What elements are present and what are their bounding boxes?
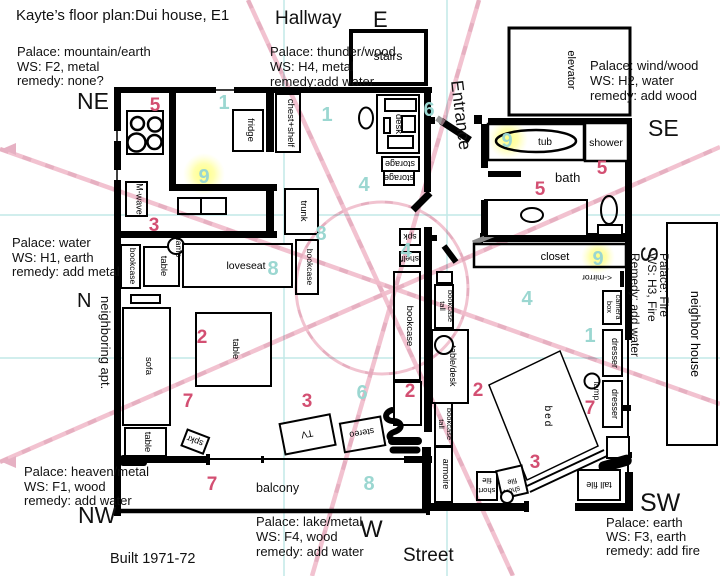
svg-text:remedy:add water: remedy:add water: [270, 74, 375, 89]
svg-text:WS: F1, wood: WS: F1, wood: [24, 479, 106, 494]
svg-text:Palace: water: Palace: water: [12, 235, 91, 250]
svg-text:elevator: elevator: [565, 50, 577, 89]
svg-text:balcony: balcony: [256, 481, 300, 495]
svg-text:short: short: [478, 486, 496, 495]
svg-text:chest+shelf: chest+shelf: [285, 99, 296, 148]
svg-text:7: 7: [585, 398, 596, 419]
svg-text:tall file: tall file: [586, 480, 612, 490]
svg-text:WS: H2, water: WS: H2, water: [590, 73, 674, 88]
svg-text:7: 7: [183, 391, 194, 412]
svg-text:WS: F2, metal: WS: F2, metal: [17, 59, 99, 74]
svg-text:<-mirror: <-mirror: [582, 273, 612, 283]
svg-text:5: 5: [597, 158, 608, 179]
svg-text:remedy: add wood: remedy: add wood: [590, 88, 697, 103]
svg-text:E: E: [373, 7, 388, 32]
svg-text:table: table: [142, 432, 153, 453]
svg-text:remedy: none?: remedy: none?: [17, 73, 104, 88]
svg-text:8: 8: [315, 223, 326, 245]
svg-text:1: 1: [584, 325, 595, 347]
svg-text:9: 9: [501, 130, 512, 152]
svg-text:WS: H4, metal: WS: H4, metal: [270, 59, 354, 74]
svg-text:4: 4: [521, 288, 533, 310]
svg-text:Remedy: add water: Remedy: add water: [628, 253, 642, 357]
svg-text:storage: storage: [385, 159, 415, 169]
svg-text:SW: SW: [640, 489, 681, 517]
svg-text:WS: F4, wood: WS: F4, wood: [256, 529, 338, 544]
svg-text:sofa: sofa: [143, 357, 154, 376]
svg-text:camera: camera: [614, 294, 623, 320]
svg-text:box: box: [605, 301, 614, 313]
svg-text:Palace: thunder/wood: Palace: thunder/wood: [270, 44, 396, 59]
svg-text:trunk: trunk: [298, 200, 309, 221]
svg-text:loveseat: loveseat: [226, 260, 265, 272]
svg-text:Built 1971-72: Built 1971-72: [110, 551, 195, 567]
svg-text:7: 7: [207, 474, 218, 495]
svg-text:storage: storage: [384, 173, 414, 183]
svg-text:remedy: add metal: remedy: add metal: [12, 264, 120, 279]
svg-text:neighboring apt.: neighboring apt.: [98, 296, 113, 389]
svg-text:1: 1: [321, 104, 332, 126]
svg-text:neighbor house: neighbor house: [688, 291, 702, 377]
svg-text:WS: H1, earth: WS: H1, earth: [12, 250, 94, 265]
svg-text:W: W: [360, 516, 383, 543]
svg-text:bath: bath: [555, 170, 580, 185]
svg-text:Palace: earth: Palace: earth: [606, 515, 683, 530]
svg-text:N: N: [77, 290, 91, 312]
svg-text:NE: NE: [77, 88, 109, 114]
svg-text:6: 6: [356, 382, 367, 404]
svg-text:Kayte’s floor plan:Dui house,: Kayte’s floor plan:Dui house, E1: [16, 7, 229, 24]
svg-text:remedy: add water: remedy: add water: [256, 544, 364, 559]
svg-text:dresser: dresser: [610, 389, 620, 419]
svg-text:SE: SE: [648, 115, 679, 141]
svg-text:8: 8: [267, 258, 278, 280]
svg-text:3: 3: [302, 391, 313, 412]
svg-text:2: 2: [473, 380, 484, 401]
svg-text:bookcase: bookcase: [305, 249, 315, 286]
svg-text:Palace: lake/metal: Palace: lake/metal: [256, 514, 362, 529]
svg-text:table: table: [158, 256, 169, 277]
svg-text:3: 3: [530, 452, 541, 473]
svg-text:9: 9: [198, 166, 209, 188]
svg-text:NW: NW: [78, 502, 117, 528]
svg-text:4: 4: [358, 174, 370, 196]
svg-text:Palace: mountain/earth: Palace: mountain/earth: [17, 44, 151, 59]
svg-text:tub: tub: [538, 137, 552, 148]
svg-text:4: 4: [400, 240, 412, 262]
svg-text:9: 9: [592, 248, 603, 270]
svg-text:file: file: [482, 476, 492, 485]
svg-text:3: 3: [149, 215, 160, 236]
svg-text:2: 2: [197, 327, 208, 348]
svg-text:8: 8: [363, 473, 374, 495]
svg-text:Palace: wind/wood: Palace: wind/wood: [590, 58, 698, 73]
svg-text:Palace: heaven/metal: Palace: heaven/metal: [24, 464, 149, 479]
svg-text:6: 6: [423, 99, 434, 121]
svg-text:bed: bed: [542, 406, 553, 429]
svg-text:bookcase: bookcase: [128, 248, 138, 285]
svg-text:WS: H3, Fire: WS: H3, Fire: [645, 253, 659, 322]
svg-text:2: 2: [405, 381, 416, 402]
svg-text:armoire: armoire: [441, 459, 451, 490]
svg-text:Hallway: Hallway: [275, 8, 342, 29]
svg-text:shower: shower: [589, 137, 623, 149]
svg-text:Street: Street: [403, 545, 454, 566]
svg-text:5: 5: [150, 95, 161, 116]
svg-text:remedy: add fire: remedy: add fire: [606, 543, 700, 558]
svg-text:WS: F3, earth: WS: F3, earth: [606, 529, 686, 544]
svg-text:fridge: fridge: [245, 118, 256, 142]
svg-text:desk: desk: [393, 114, 404, 134]
svg-text:closet: closet: [541, 251, 570, 263]
svg-text:1: 1: [218, 92, 229, 114]
svg-text:5: 5: [535, 179, 546, 200]
